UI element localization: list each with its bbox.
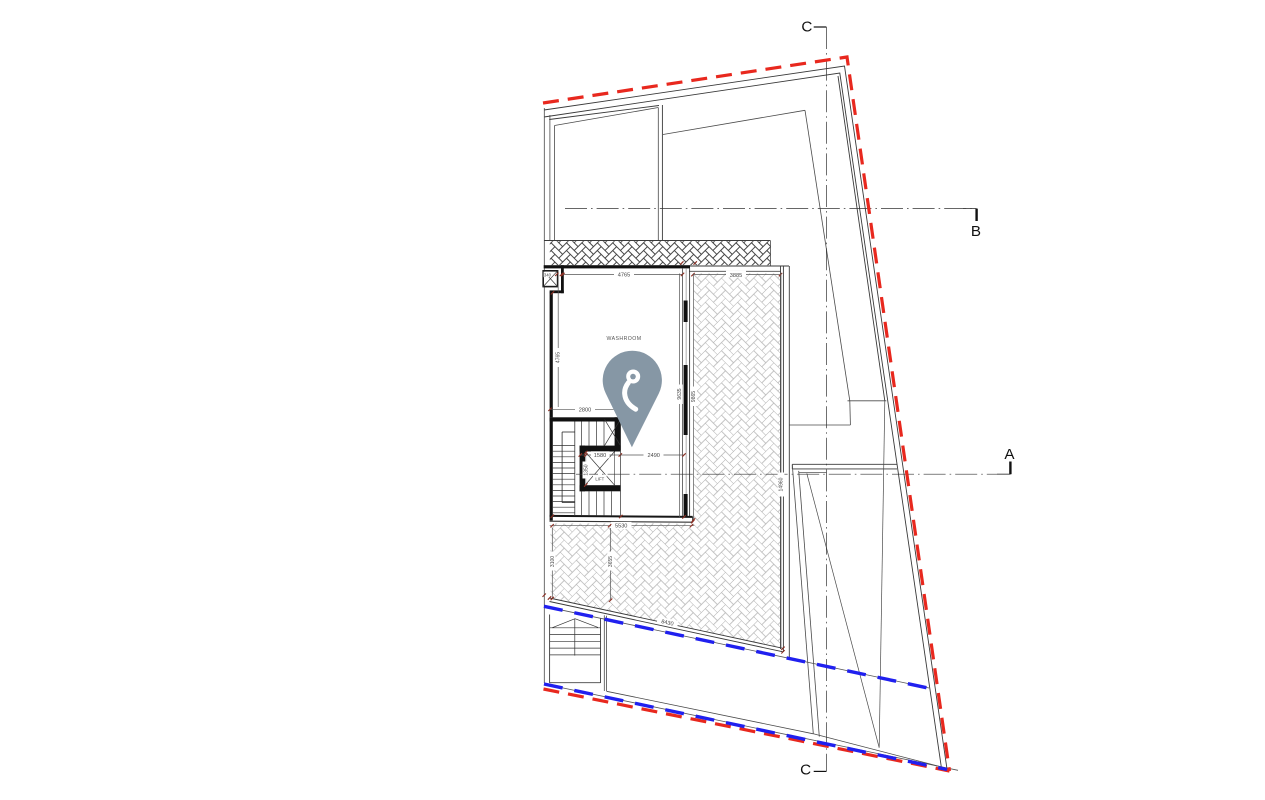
svg-text:C: C xyxy=(801,19,812,36)
svg-text:3655: 3655 xyxy=(608,556,614,567)
svg-text:B: B xyxy=(971,223,981,240)
svg-text:9635: 9635 xyxy=(677,388,683,399)
svg-text:5530: 5530 xyxy=(615,524,627,530)
svg-text:1580: 1580 xyxy=(594,453,606,459)
svg-text:14960: 14960 xyxy=(779,477,785,491)
svg-text:2800: 2800 xyxy=(579,407,591,413)
svg-text:340: 340 xyxy=(544,272,552,277)
svg-text:3100: 3100 xyxy=(550,556,556,567)
svg-text:3885: 3885 xyxy=(730,273,742,279)
svg-text:1350: 1350 xyxy=(583,464,589,475)
svg-text:C: C xyxy=(800,762,811,779)
svg-text:A: A xyxy=(1004,446,1015,463)
svg-text:2490: 2490 xyxy=(647,453,659,459)
svg-text:4765: 4765 xyxy=(618,273,630,279)
svg-text:LIFT: LIFT xyxy=(595,476,604,481)
svg-text:WASHROOM: WASHROOM xyxy=(606,336,641,342)
svg-text:9865: 9865 xyxy=(691,391,697,402)
svg-text:4765: 4765 xyxy=(556,352,562,363)
